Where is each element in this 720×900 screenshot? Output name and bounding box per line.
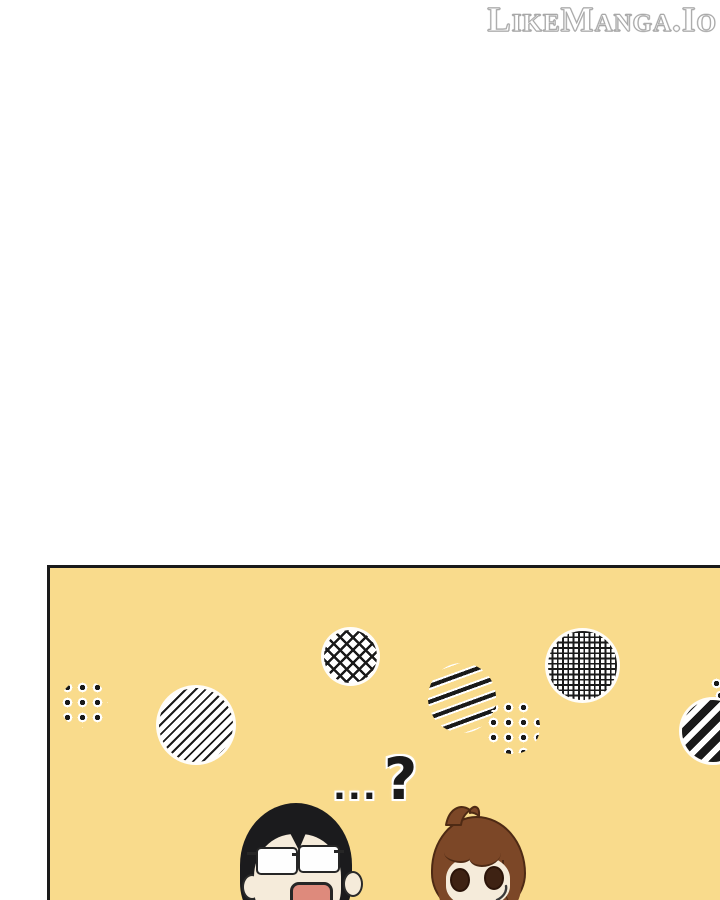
pattern-dots-cluster-mid: [486, 700, 540, 754]
question-mark-text: ?: [384, 745, 418, 813]
comic-panel: ... ?: [47, 565, 720, 900]
glasses-left-lens: [256, 847, 298, 875]
pattern-edge-dot: [714, 689, 720, 702]
pattern-dots-cluster-left: [60, 680, 108, 728]
pattern-fine-mesh-circle: [548, 631, 617, 700]
character-black-hair: [233, 798, 358, 900]
character-brown-hair: [425, 795, 530, 900]
site-watermark: LikeManga.Io: [487, 0, 717, 40]
right-ear: [343, 871, 363, 897]
pattern-diagonal-lines-circle: [159, 688, 233, 762]
sweat-drop-icon: [495, 884, 509, 900]
pattern-crosshatch-diamond-circle: [324, 630, 377, 683]
glasses-right-temple: [334, 850, 344, 853]
glasses-bridge: [292, 853, 300, 856]
manga-page: LikeManga.Io ... ?: [0, 0, 720, 900]
glasses-left-temple: [247, 852, 257, 855]
open-mouth: [290, 882, 333, 900]
ahoge-hair-tuft-icon: [443, 801, 483, 827]
left-eye: [450, 868, 470, 892]
pattern-thick-stripes-circle: [682, 700, 720, 762]
